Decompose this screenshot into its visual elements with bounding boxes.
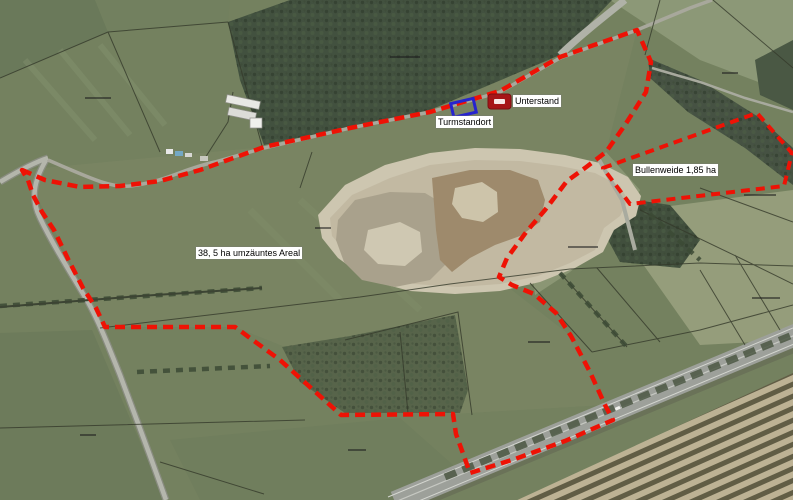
areal-label: 38, 5 ha umzäuntes Areal (196, 247, 302, 259)
turmstandort-label: Turmstandort (436, 116, 493, 128)
aerial-map: Turmstandort Unterstand Bullenweide 1,85… (0, 0, 793, 500)
bullenweide-label: Bullenweide 1,85 ha (633, 164, 718, 176)
aerial-basemap (0, 0, 793, 500)
unterstand-label: Unterstand (513, 95, 561, 107)
unterstand-marker-icon (488, 94, 511, 109)
